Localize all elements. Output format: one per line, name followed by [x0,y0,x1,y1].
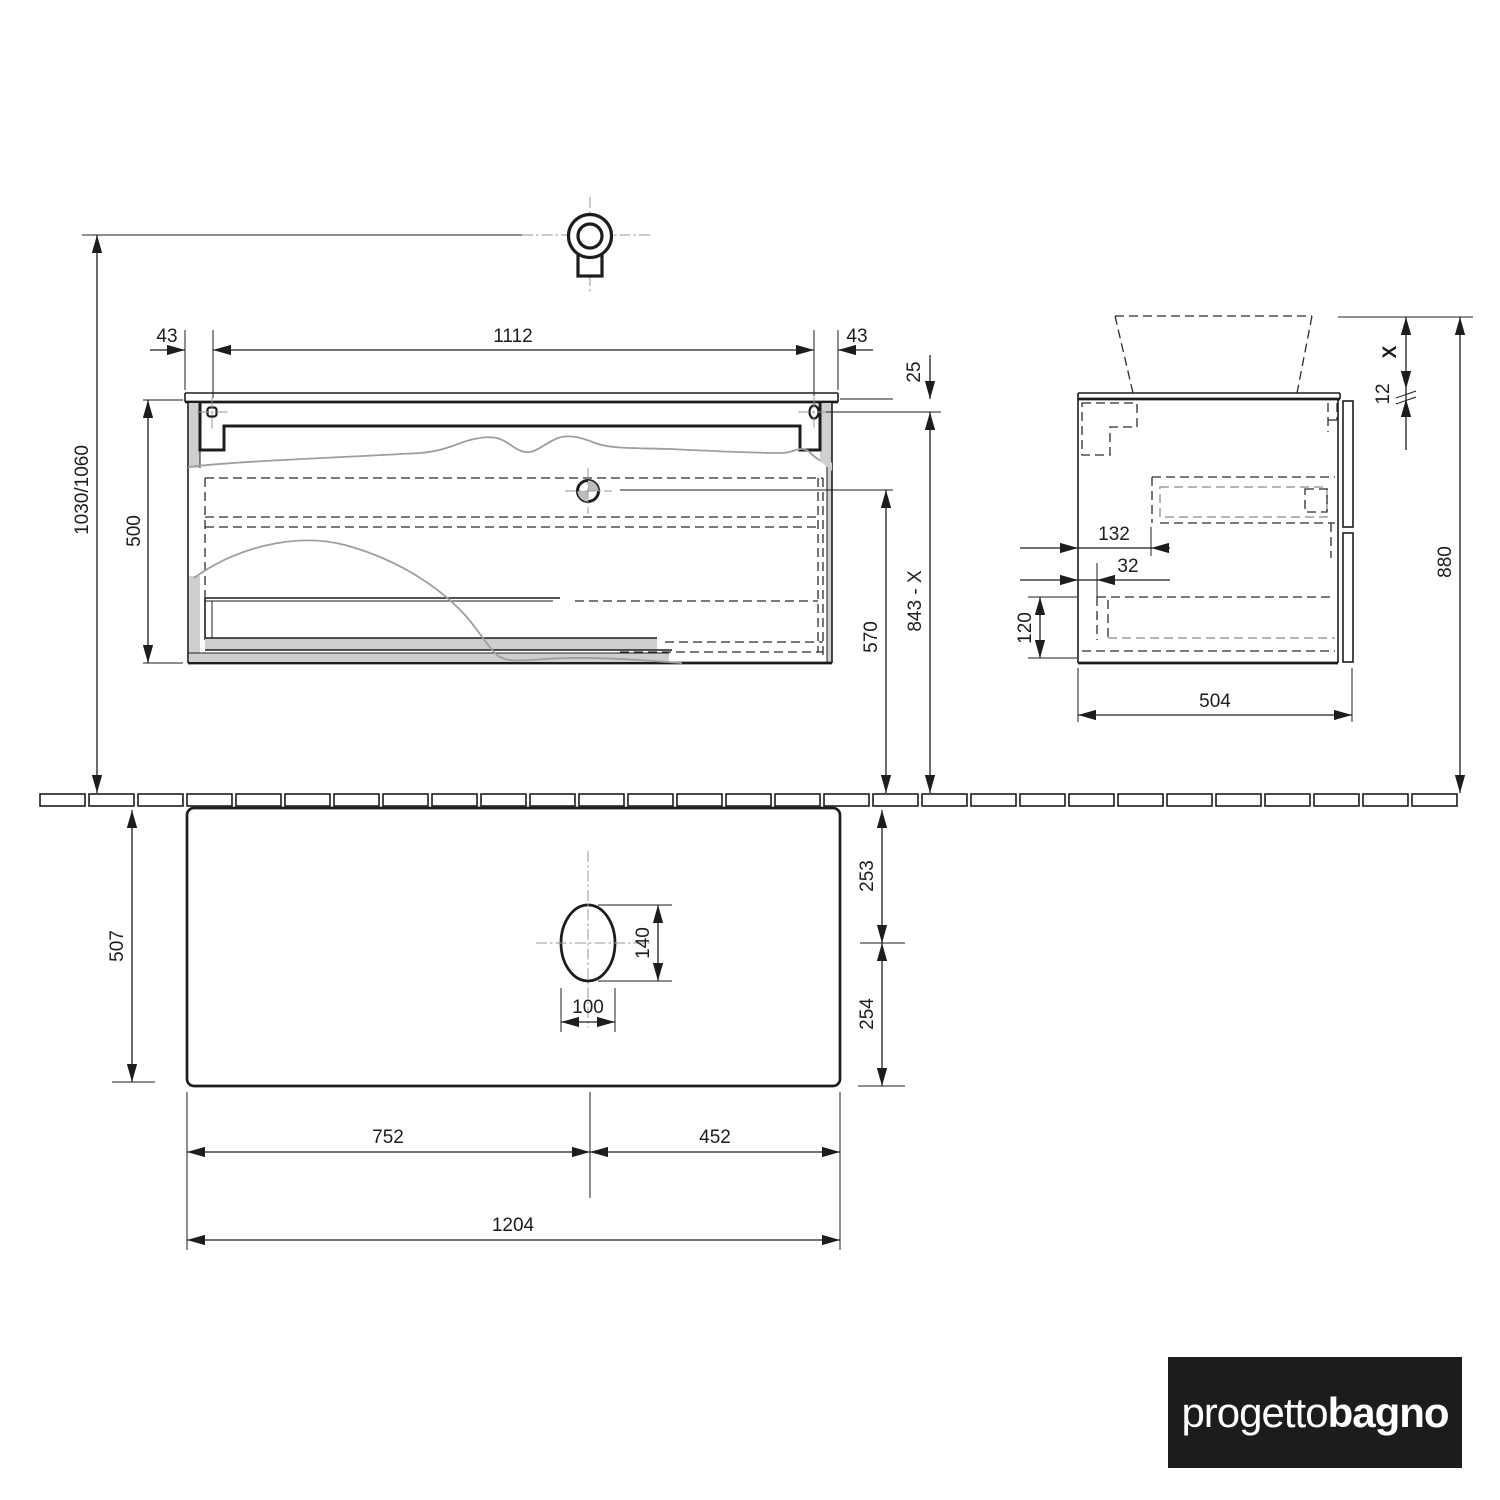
left-side-panel [189,403,200,468]
technical-drawing-page: 43 1112 43 1030/1060 500 25 843 - X 570 [0,0,1500,1500]
break-line-upper [188,436,832,468]
dim-drain-to-floor: 570 [861,621,882,653]
dim-total-width: 1204 [492,1215,535,1236]
dim-back-to-center: 253 [857,860,878,892]
countertop-plan [187,808,840,1086]
top-recess-line [200,402,820,450]
dim-total-height: 1030/1060 [72,445,93,535]
progettobagno-logo: progettobagno [1168,1357,1462,1468]
side-dimensions: 132 32 120 504 X 12 880 [1015,317,1460,793]
dim-basin-rim: X [1380,345,1401,358]
dim-overhang-right: 43 [846,326,867,347]
dim-plan-depth: 507 [107,930,128,962]
plan-dimensions: 140 100 507 253 254 752 452 1204 [107,810,905,1250]
front-panel-upper [1343,401,1353,527]
plan-view [187,808,840,1086]
dim-top-to-hole: 25 [904,361,925,382]
front-view [185,393,838,663]
dim-front-offset: 32 [1117,556,1138,577]
faucet-symbol [82,197,650,293]
dim-overhang-left: 43 [156,326,177,347]
dim-left-to-center: 752 [372,1127,404,1148]
side-view [1078,316,1473,663]
drain-hole [565,468,612,514]
faucet-inner-ring [578,224,602,248]
drawer-section [188,598,672,662]
dim-bottom-inset: 120 [1015,612,1036,644]
dim-drawer-offset: 132 [1098,524,1130,545]
logo-text-regular: progetto [1181,1389,1327,1437]
dim-wall-height: 880 [1435,546,1456,578]
dim-hole-length: 140 [633,927,654,959]
dim-hole-width: 100 [572,997,604,1018]
dim-top-thickness: 12 [1373,383,1394,404]
dim-center-to-right: 452 [699,1127,731,1148]
siphon-cutout [1082,403,1137,455]
dim-hole-span: 1112 [493,326,532,347]
drawing-canvas: 43 1112 43 1030/1060 500 25 843 - X 570 [0,0,1500,1500]
dim-top-to-floor: 843 - X [905,570,926,632]
dim-cabinet-height: 500 [124,515,145,547]
front-panel-lower [1343,533,1353,662]
dim-center-to-front: 254 [857,998,878,1030]
logo-text-bold: bagno [1328,1389,1449,1437]
dim-depth: 504 [1199,691,1231,712]
wall-hatch-band [40,794,1457,806]
front-dimensions: 43 1112 43 1030/1060 500 25 843 - X 570 [72,235,941,793]
